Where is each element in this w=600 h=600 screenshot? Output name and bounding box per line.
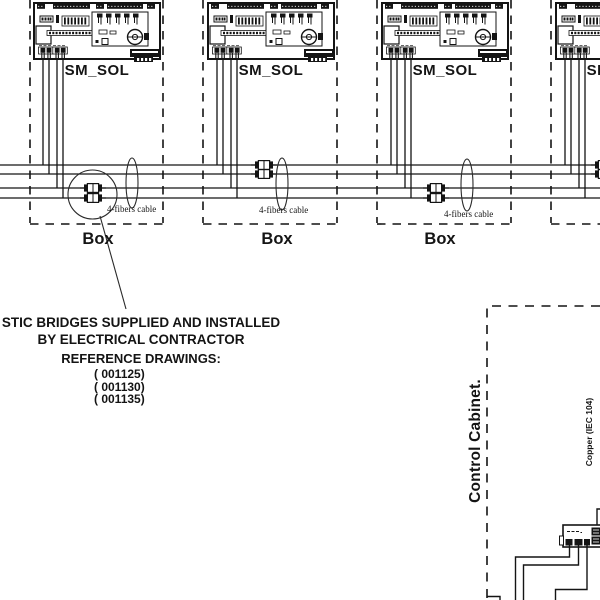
fiber-bridges: [80, 161, 600, 203]
contractor-note: STIC BRIDGES SUPPLIED AND INSTALLED BY E…: [0, 315, 282, 406]
reference-drawing-list: ( 001125) ( 001130) ( 001135): [94, 368, 174, 406]
sm-sol-board-2: [208, 3, 334, 62]
cable-ellipse-markers: [126, 158, 473, 211]
reference-drawing-3: ( 001135): [94, 393, 174, 406]
box-label-3: Box: [424, 230, 455, 249]
note-line-3: REFERENCE DRAWINGS:: [0, 351, 282, 366]
fiber-cable-label-1: 4-fibers cable: [107, 204, 156, 214]
sm-sol-label-4: SM_SOL: [587, 62, 600, 79]
sm-sol-label-2: SM_SOL: [239, 62, 304, 79]
cabinet-wiring: [488, 509, 600, 600]
fiber-cable-label-2: 4-fibers cable: [259, 205, 308, 215]
cabinet-mini-board: [560, 525, 600, 547]
note-line-2: BY ELECTRICAL CONTRACTOR: [0, 331, 282, 348]
sm-sol-board-1: [34, 3, 160, 62]
sm-sol-board-4: [556, 3, 600, 62]
schematic-canvas: [0, 0, 600, 600]
unit-pigtails: [43, 58, 585, 198]
box-label-2: Box: [261, 230, 292, 249]
box-label-1: Box: [82, 230, 113, 249]
fiber-cable-label-3: 4-fibers cable: [444, 209, 493, 219]
note-line-1: STIC BRIDGES SUPPLIED AND INSTALLED: [0, 315, 282, 331]
sm-sol-board-3: [382, 3, 508, 62]
sm-sol-label-1: SM_SOL: [65, 62, 130, 79]
sm-sol-label-3: SM_SOL: [413, 62, 478, 79]
reference-drawing-1: ( 001125): [94, 368, 174, 381]
control-cabinet-label: Control Cabinet.: [467, 379, 485, 503]
copper-iec104-label: Copper (IEC 104): [584, 398, 594, 467]
